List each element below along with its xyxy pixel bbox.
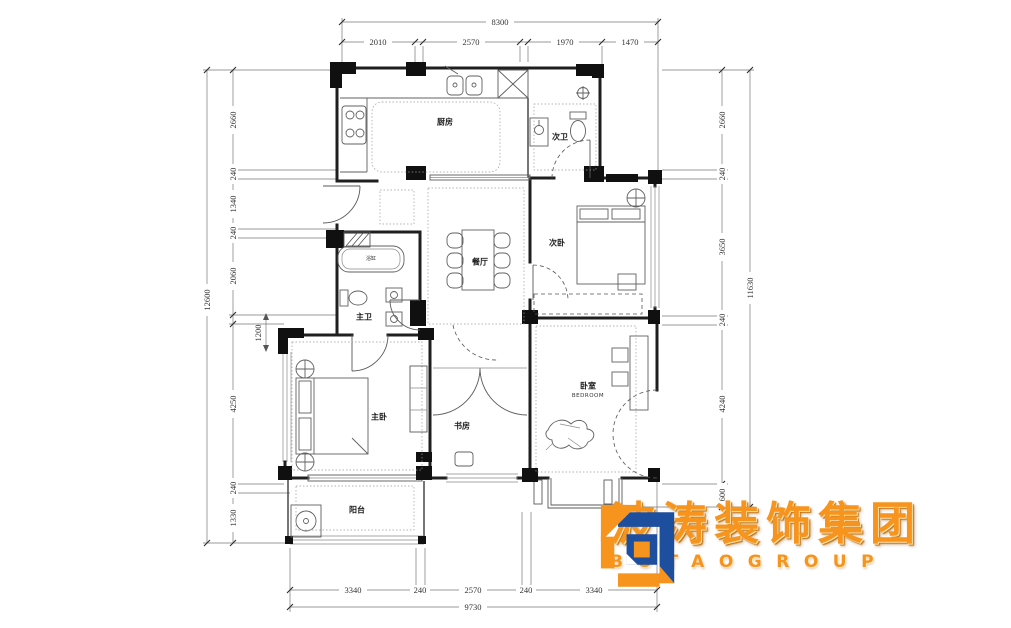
kitchen-label: 厨房 (437, 117, 453, 127)
dim-left-seg: 2660 (228, 112, 238, 129)
second-bath-label: 次卫 (552, 132, 568, 142)
dim-bottom-overall: 9730 (465, 602, 482, 612)
corner-basin-icon (576, 86, 590, 100)
dim-top-seg: 2570 (463, 37, 480, 47)
bed (296, 378, 368, 454)
washing-machine-icon (291, 505, 321, 537)
second-bedroom-label: 次卧 (549, 238, 565, 248)
bath-sink-icon (530, 118, 548, 146)
round-table-icon (627, 189, 645, 207)
dim-left-seg: 2060 (228, 268, 238, 285)
dim-left-seg: 240 (228, 168, 238, 181)
master-bedroom-door (352, 335, 388, 371)
entry-door (323, 186, 360, 223)
chair (612, 372, 628, 386)
dim-top-overall: 8300 (492, 17, 509, 27)
dim-top-seg: 2010 (370, 37, 387, 47)
dim-right-seg: 240 (717, 168, 727, 181)
bedroom-en-label: BEDROOM (572, 393, 604, 399)
master-bedroom-label: 主卧 (371, 412, 387, 422)
dim-left-seg: 4250 (228, 396, 238, 413)
dim-left-seg: 1340 (228, 196, 238, 213)
stove-icon (342, 106, 366, 144)
wardrobe (410, 366, 427, 432)
stool (455, 452, 473, 466)
wardrobe (534, 294, 642, 314)
bed (577, 206, 645, 284)
dim-left-seg: 240 (228, 482, 238, 495)
study-label: 书房 (454, 421, 470, 431)
dim-bottom-seg: 240 (414, 585, 427, 595)
dim-bottom-seg: 240 (520, 585, 533, 595)
dining-label: 餐厅 (471, 257, 488, 267)
dim-right-seg: 240 (717, 314, 727, 327)
bedroom-door (613, 390, 657, 478)
botao-logo-mark (596, 500, 684, 588)
round-table-icon (296, 453, 314, 471)
basin-icon (386, 312, 402, 326)
dim-right-seg: 2660 (717, 112, 727, 129)
doors (323, 140, 657, 478)
study-double-door (433, 368, 527, 415)
balcony-label: 阳台 (349, 505, 365, 515)
closet-hatch (344, 232, 370, 247)
dim-bottom-seg: 3340 (345, 585, 362, 595)
toilet-icon (570, 112, 586, 142)
room-labels: 厨房 次卫 次卧 餐厅 主卫 浴缸 主卧 书房 卧室 BEDROOM 阳台 (349, 117, 604, 515)
dim-left-seg: 1330 (228, 510, 238, 527)
chair (612, 348, 628, 362)
dim-left-overall: 12600 (202, 289, 212, 310)
left-dimensions: 12600 2660 240 1340 240 2060 4250 240 13… (202, 67, 337, 546)
botao-logo: 波涛装饰集团 BOTAOGROUP (596, 500, 922, 572)
sink-icon (445, 66, 482, 95)
hall-door (453, 325, 497, 360)
dim-left-floating: 1200 (253, 325, 263, 342)
right-dimensions: 11630 2660 240 3650 240 4240 600 (628, 67, 755, 510)
dim-top-seg: 1470 (622, 37, 639, 47)
dim-right-overall: 11630 (745, 278, 755, 299)
furniture (291, 66, 648, 537)
floor-plan-page: 8300 2010 2570 1970 1470 12600 2660 240 … (0, 0, 1011, 628)
dim-right-seg: 4240 (717, 396, 727, 413)
dim-top-seg: 1970 (557, 37, 574, 47)
dim-bottom-seg: 2570 (465, 585, 482, 595)
bedroom-label: 卧室 (580, 381, 596, 391)
sketch-figure (546, 420, 594, 450)
toilet-icon (340, 290, 367, 306)
bathtub-label: 浴缸 (366, 255, 376, 262)
dim-left-seg: 240 (228, 227, 238, 240)
nightstand (618, 274, 636, 290)
master-bath-label: 主卫 (356, 312, 372, 322)
desk (630, 336, 648, 410)
second-bedroom-door (533, 265, 568, 300)
dim-right-seg: 3650 (717, 239, 727, 256)
walls (283, 68, 659, 544)
round-table-icon (296, 360, 314, 378)
